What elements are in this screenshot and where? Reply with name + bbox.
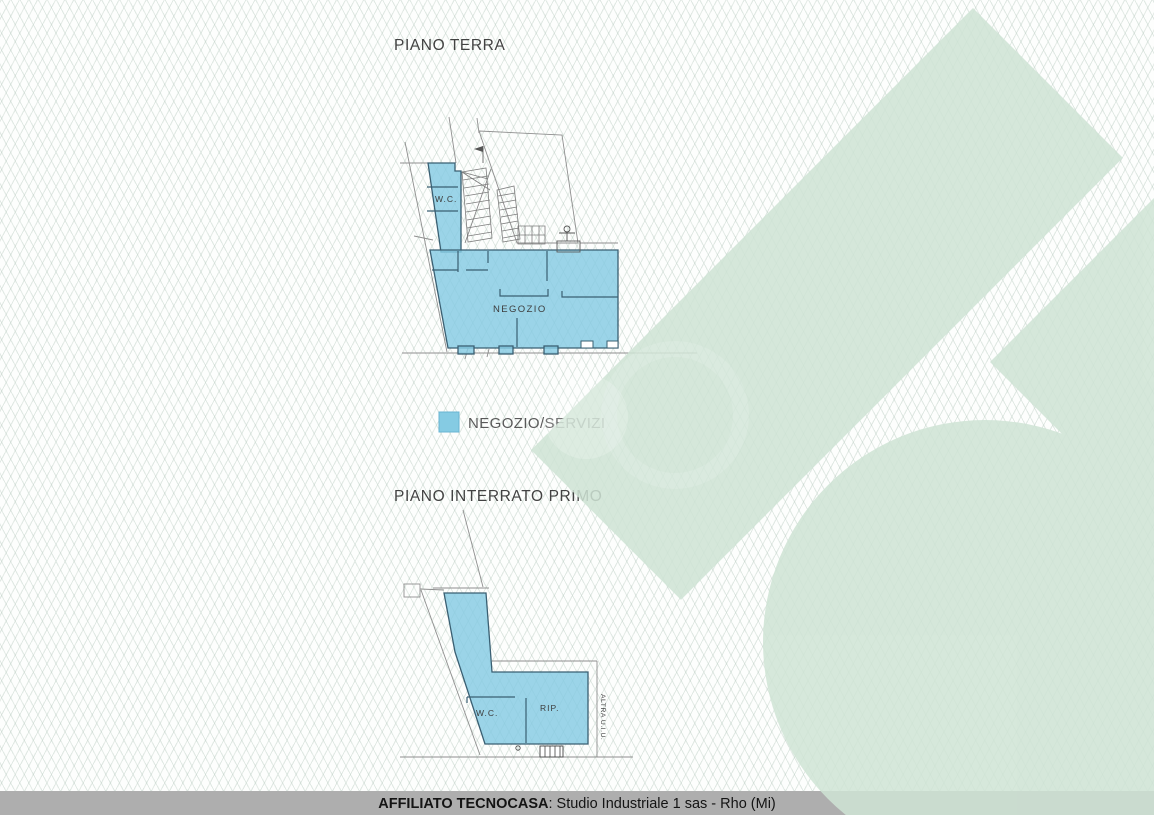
staircase — [462, 168, 545, 244]
legend-swatch — [439, 412, 459, 432]
floorplan-canvas: W.C. NEGOZIO NEGOZIO/SERVIZI PIANO TERRA… — [0, 0, 1154, 815]
footer-affiliate-bold: AFFILIATO TECNOCASA — [378, 796, 549, 812]
ground-floor-plan: W.C. NEGOZIO — [400, 117, 697, 359]
footer-affiliate-rest: : Studio Industriale 1 sas - Rho (Mi) — [548, 796, 775, 812]
basement-unit-area — [444, 593, 588, 744]
basement-floor-title: PIANO INTERRATO PRIMO — [394, 488, 602, 505]
footer-affiliate-text: AFFILIATO TECNOCASA: Studio Industriale … — [378, 796, 776, 812]
ground-wc-area — [428, 163, 461, 252]
flag-marker-icon — [474, 146, 483, 163]
basement-floor-details — [516, 746, 563, 757]
ground-floor-title: PIANO TERRA — [394, 37, 505, 54]
ground-shop-label: NEGOZIO — [493, 304, 547, 315]
basement-floor-plan: W.C. RIP. ALTRA U.I.U. — [400, 510, 633, 757]
tecnocasa-watermark — [531, 8, 1154, 815]
basement-storage-label: RIP. — [540, 703, 559, 713]
utility-symbol-icon — [559, 226, 575, 241]
basement-wc-label: W.C. — [476, 708, 498, 718]
adjacent-unit-label: ALTRA U.I.U. — [599, 694, 606, 740]
ground-wc-label: W.C. — [435, 194, 457, 204]
floorplan-document: W.C. NEGOZIO NEGOZIO/SERVIZI PIANO TERRA… — [0, 0, 1154, 815]
